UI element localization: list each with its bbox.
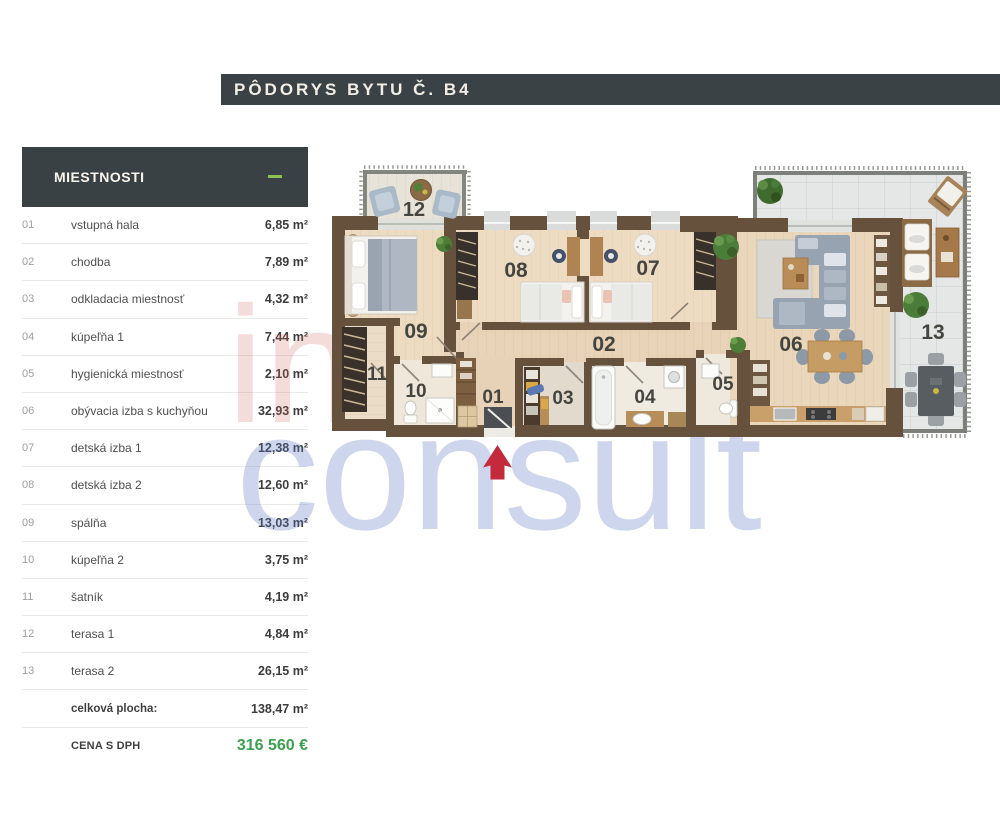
svg-text:13: 13 [921,321,944,344]
svg-text:11: 11 [367,364,388,385]
svg-text:01: 01 [482,387,504,408]
svg-text:05: 05 [712,374,734,395]
svg-text:02: 02 [592,333,615,356]
svg-text:03: 03 [552,388,573,409]
svg-text:04: 04 [634,387,656,408]
svg-text:07: 07 [636,257,659,280]
svg-text:06: 06 [779,333,802,356]
svg-text:09: 09 [404,320,427,343]
svg-text:12: 12 [403,199,425,221]
svg-text:08: 08 [504,259,528,282]
svg-text:10: 10 [405,381,426,402]
